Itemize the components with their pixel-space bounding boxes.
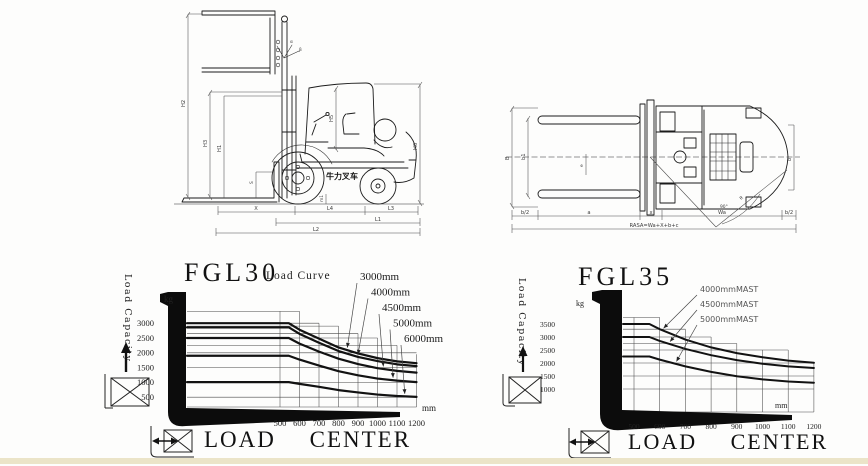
brand-text: 牛力叉车 (326, 171, 358, 181)
front-wheel (272, 152, 324, 204)
dim-x: X (254, 206, 258, 212)
svg-text:1500: 1500 (137, 362, 154, 372)
dim-x-top: x (649, 210, 652, 216)
dim-a: a (587, 210, 590, 216)
mast-label: 5000mm (393, 318, 433, 330)
mast-label: 4500mm (382, 302, 422, 314)
svg-text:3000: 3000 (137, 318, 154, 328)
svg-text:mm: mm (422, 403, 436, 413)
dim-b1: b1 (521, 153, 527, 160)
dim-h3: H3 (203, 140, 209, 147)
dim-b: B (505, 156, 511, 160)
dim-h1: H1 (217, 145, 223, 152)
fgl35-title: FGL35 (578, 262, 673, 292)
load-center-icon (566, 426, 614, 462)
body-top (702, 106, 788, 209)
mast-label: 4000mmMAST (700, 285, 758, 294)
capacity-curve-4500mmMAST (623, 337, 814, 368)
forklift-body (272, 83, 416, 183)
bottom-strip (0, 458, 868, 464)
dim-l4: L4 (327, 206, 334, 212)
dim-h2: H2 (181, 100, 187, 107)
load-crate-icon (103, 372, 153, 412)
turning-radius-label: R (739, 195, 745, 202)
lowered-fork (182, 162, 279, 202)
up-arrow-icon (514, 344, 532, 374)
dim-e: e (580, 164, 585, 167)
dim-aisle-formula: RASA=Wa+X+b+c (630, 223, 679, 229)
mast-label: 4500mmMAST (700, 300, 758, 309)
svg-text:mm: mm (775, 401, 788, 410)
svg-text:2000: 2000 (540, 359, 555, 368)
turning-geometry (650, 157, 787, 227)
svg-text:3500: 3500 (540, 320, 555, 329)
fgl35-xlabel: LOAD CENTER (628, 429, 828, 455)
dim-l2: L2 (313, 227, 319, 233)
dim-l3: L3 (388, 206, 394, 212)
up-arrow-icon (117, 340, 135, 374)
mast (277, 16, 299, 198)
forklift-top-view-drawing: R B b1 e b 90° b/2 a x Wa b/2 RASA=Wa+X+… (498, 80, 810, 238)
svg-text:3000: 3000 (540, 333, 555, 342)
fork-axis-silhouette (592, 290, 792, 430)
svg-text:2500: 2500 (540, 346, 555, 355)
forklift-side-view-drawing: α β 牛力叉车 (156, 2, 442, 246)
fgl30-xlabel: LOAD CENTER (204, 427, 411, 453)
dim-b-half-right: b/2 (785, 210, 793, 216)
dim-h5: H5 (329, 115, 335, 122)
raised-backrest (202, 11, 280, 74)
tilt-angle-rear-label: β (299, 47, 302, 53)
dim-h6: H6 (413, 143, 419, 150)
carriage-top (640, 100, 654, 215)
mast-top (656, 106, 702, 209)
svg-text:2000: 2000 (137, 348, 154, 358)
mast-label: 3000mm (360, 271, 400, 283)
mast-label: 5000mmMAST (700, 315, 758, 324)
capacity-curve-3000mm (187, 323, 417, 363)
capacity-curve-6000mm (187, 382, 417, 397)
rear-wheel (360, 168, 396, 204)
dim-s: S (249, 181, 255, 184)
top-view-dimensions: B b1 e b 90° b/2 a x Wa b/2 RASA=Wa+X+b+… (505, 106, 796, 233)
load-center-icon (148, 424, 198, 462)
forklift-spec-sheet: α β 牛力叉车 (0, 0, 868, 466)
fgl30-title: FGL30 (184, 258, 279, 288)
svg-text:kg: kg (576, 299, 584, 308)
load-crate-icon (501, 372, 543, 408)
tilt-angle-front-label: α (290, 40, 293, 45)
mast-label: 6000mm (404, 333, 444, 345)
svg-text:kg: kg (164, 294, 174, 304)
dim-l1: L1 (375, 217, 381, 223)
svg-text:2500: 2500 (137, 333, 154, 343)
dim-b-half-left: b/2 (521, 210, 529, 216)
dim-m1: m1 (319, 195, 325, 202)
dim-wa: Wa (718, 210, 726, 216)
mast-label: 4000mm (371, 287, 411, 299)
fgl30-subtitle: Load Curve (266, 270, 331, 282)
